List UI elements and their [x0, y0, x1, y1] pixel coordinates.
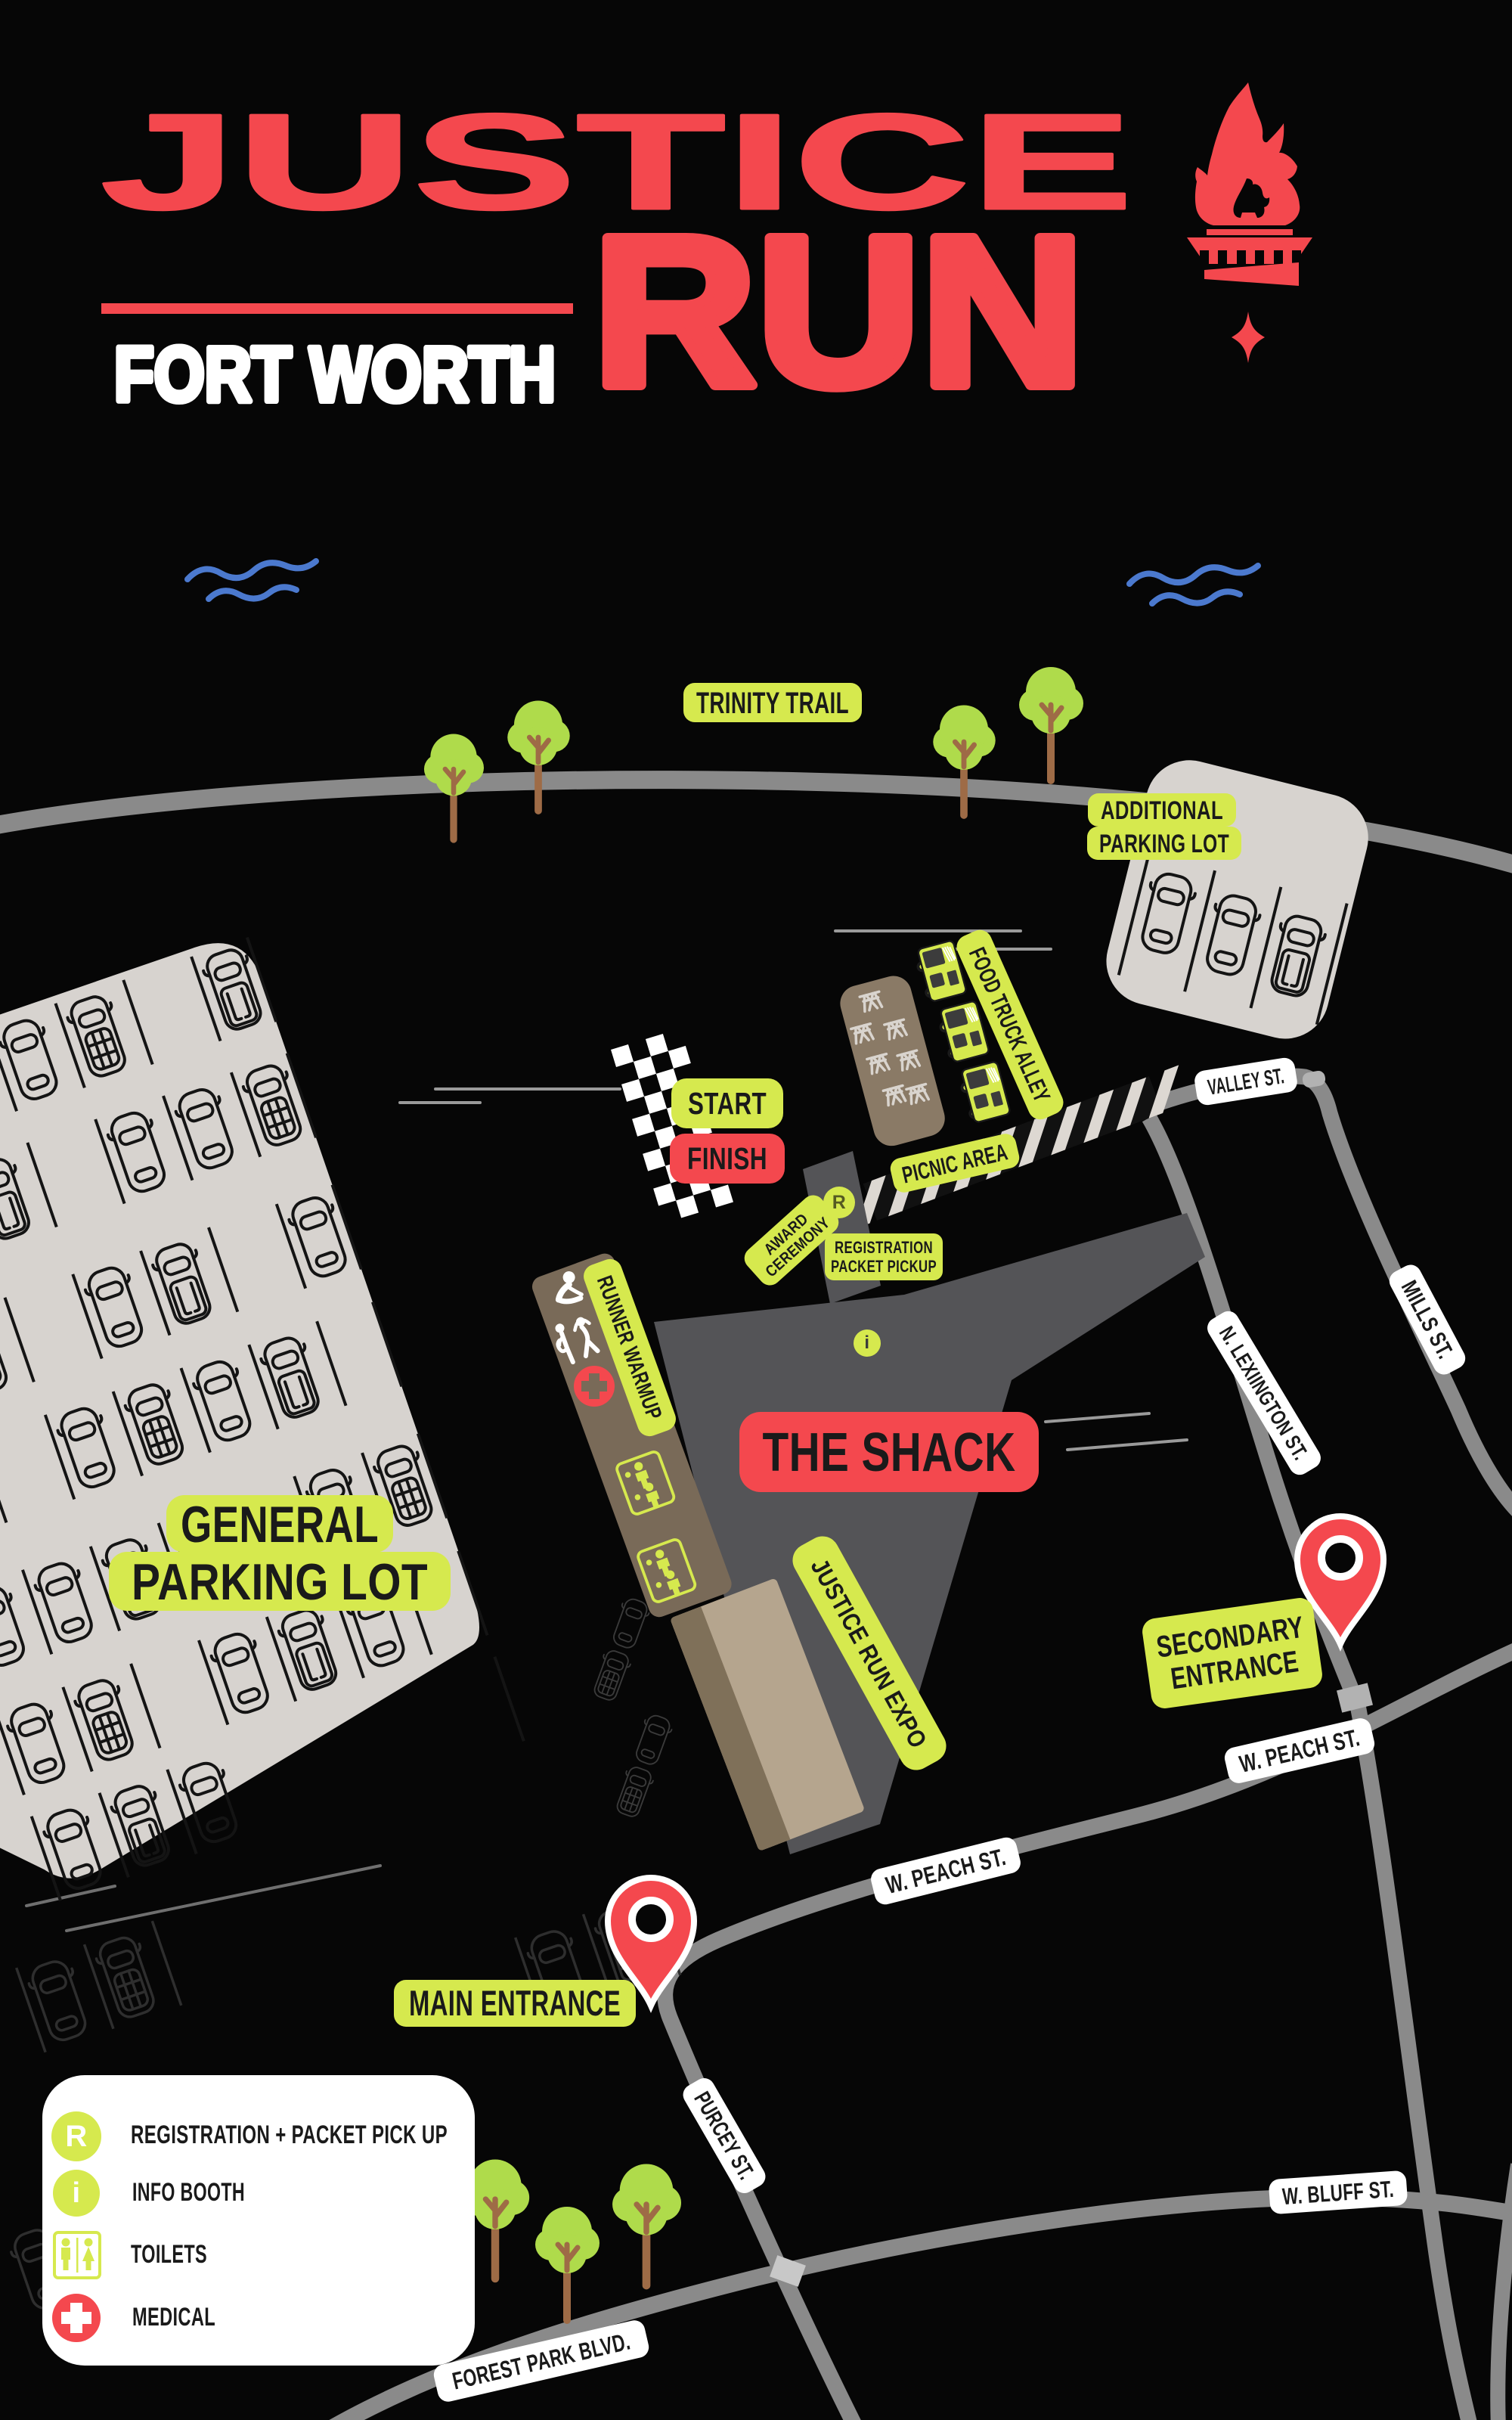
svg-text:TRINITY TRAIL: TRINITY TRAIL	[696, 687, 849, 720]
svg-text:i: i	[72, 2177, 80, 2209]
svg-text:REGISTRATION + PACKET PICK UP: REGISTRATION + PACKET PICK UP	[131, 2121, 448, 2149]
svg-text:START: START	[688, 1086, 767, 1121]
svg-text:PARKING LOT: PARKING LOT	[132, 1553, 428, 1611]
svg-text:RUN: RUN	[593, 191, 1085, 430]
svg-text:THE SHACK: THE SHACK	[763, 1423, 1016, 1483]
svg-text:REGISTRATION: REGISTRATION	[835, 1238, 933, 1257]
svg-text:MEDICAL: MEDICAL	[132, 2303, 215, 2332]
svg-text:FINISH: FINISH	[687, 1141, 767, 1176]
svg-text:MAIN ENTRANCE: MAIN ENTRANCE	[409, 1983, 621, 2023]
svg-text:GENERAL: GENERAL	[181, 1496, 379, 1553]
svg-text:i: i	[864, 1333, 869, 1353]
svg-text:R: R	[65, 2120, 87, 2153]
svg-text:PACKET PICKUP: PACKET PICKUP	[831, 1257, 937, 1276]
svg-text:R: R	[832, 1192, 847, 1213]
svg-text:TOILETS: TOILETS	[131, 2240, 207, 2269]
svg-text:INFO BOOTH: INFO BOOTH	[132, 2178, 245, 2207]
svg-text:FORT WORTH: FORT WORTH	[114, 332, 556, 417]
svg-text:PARKING LOT: PARKING LOT	[1099, 830, 1229, 858]
svg-text:ADDITIONAL: ADDITIONAL	[1101, 796, 1223, 825]
